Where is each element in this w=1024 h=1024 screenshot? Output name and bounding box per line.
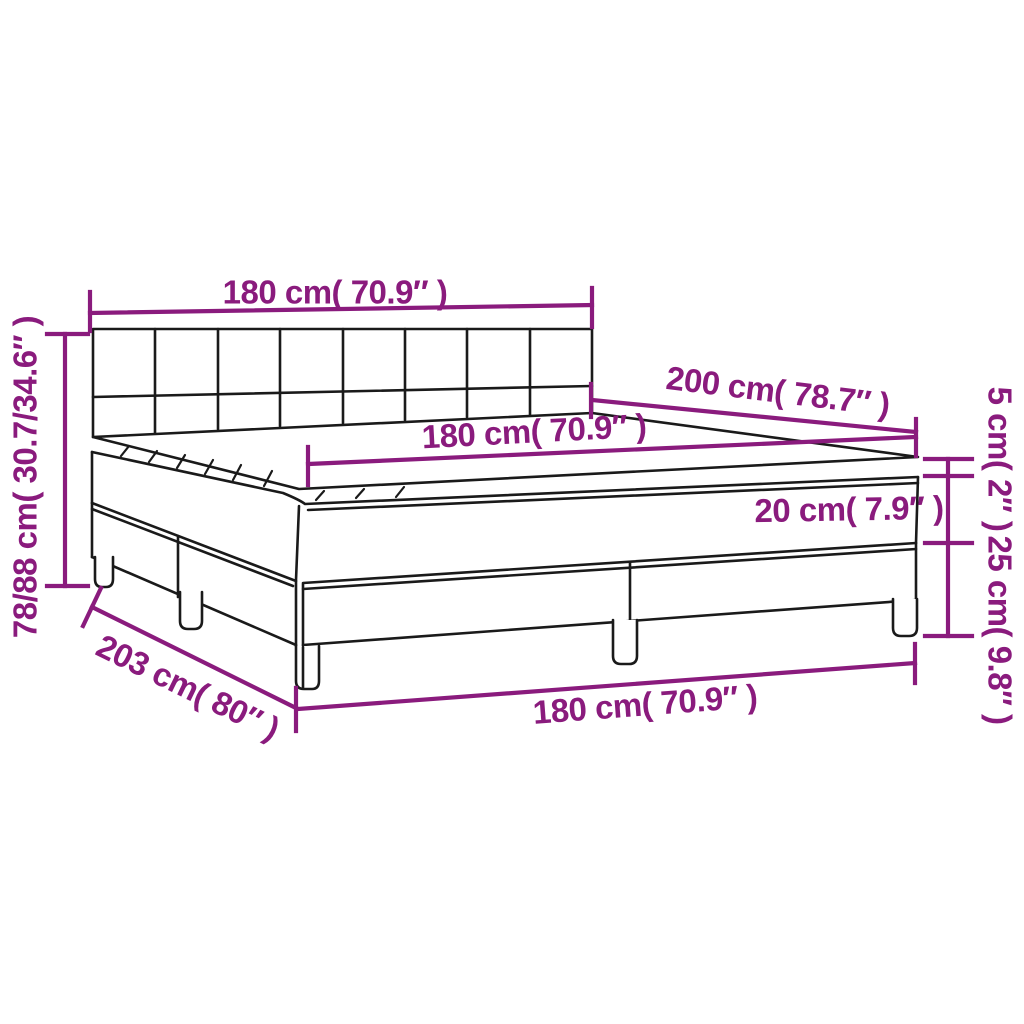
bed-diagram-svg: 180 cm( 70.9″ ) 78/88 cm( 30.7/34.6″ ) 1… [0,0,1024,1024]
label-topper-height: 5 cm( 2″ ) [982,387,1019,532]
label-mattress-length: 200 cm( 78.7″ ) [664,359,892,423]
dim-right-height-stack [925,459,972,636]
dim-total-height [47,334,88,586]
leg [180,592,202,629]
bed-dimension-diagram: 180 cm( 70.9″ ) 78/88 cm( 30.7/34.6″ ) 1… [0,0,1024,1024]
label-base-width: 180 cm( 70.9″ ) [532,677,759,731]
leg [296,646,319,689]
label-total-height: 78/88 cm( 30.7/34.6″ ) [7,316,44,638]
label-mattress-height: 20 cm( 7.9″ ) [754,489,944,529]
leg [893,599,917,636]
leg [95,557,113,587]
label-headboard-width: 180 cm( 70.9″ ) [223,274,448,311]
label-base-height: 25 cm( 9.8″ ) [982,535,1019,724]
leg [613,620,637,664]
